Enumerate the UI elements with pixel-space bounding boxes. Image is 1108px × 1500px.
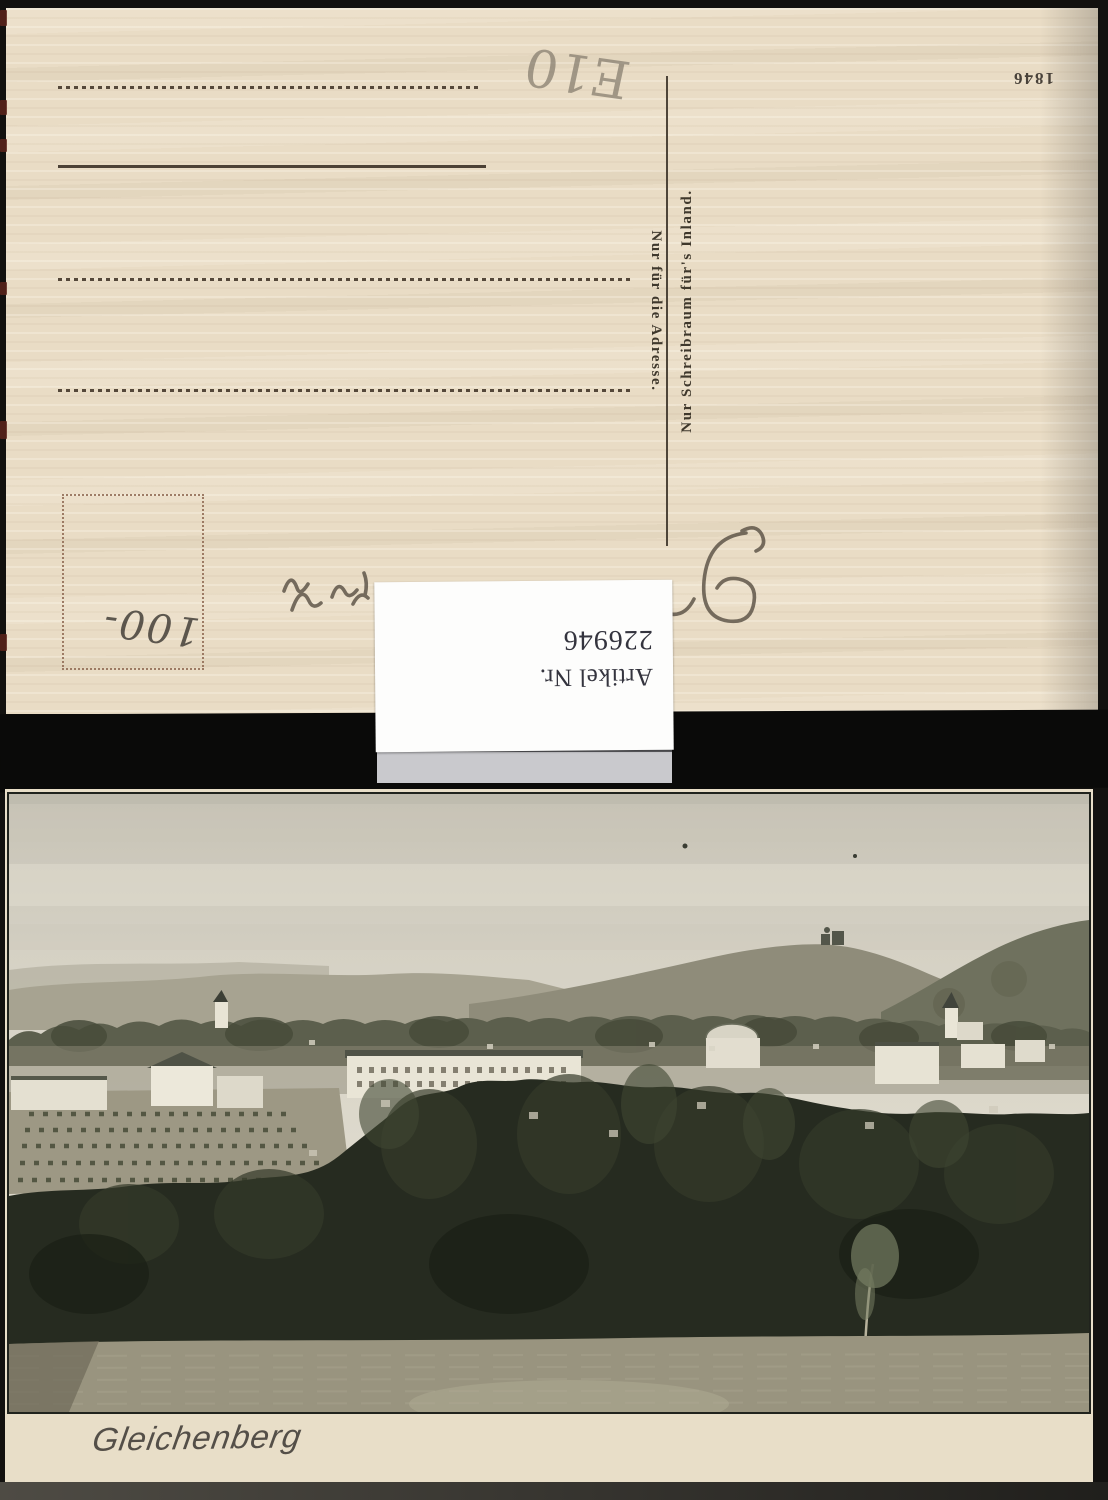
inventory-number: 1846 <box>990 62 1076 88</box>
postcard-front: Gleichenberg <box>5 789 1093 1482</box>
scan-edge-mark <box>0 139 7 152</box>
landscape-photo-svg <box>9 794 1089 1412</box>
label-number: 226946 <box>563 620 653 659</box>
scan-edge-mark <box>0 10 7 26</box>
article-number-label: Artikel Nr. 226946 <box>374 580 673 753</box>
scan-bottom-shadow <box>0 1482 1108 1500</box>
address-line <box>58 389 634 392</box>
label-text-block: Artikel Nr. 226946 <box>374 580 673 753</box>
label-shadow-strip <box>377 749 672 783</box>
scan-shading <box>1040 8 1098 714</box>
pencil-note-handwriting: E10 <box>525 20 630 123</box>
address-line <box>58 86 482 89</box>
scan-edge-mark <box>0 421 7 439</box>
divider-text-left: Nur für die Adresse. <box>642 211 664 411</box>
postcard-scan: Nur für die Adresse. Nur Schreibraum für… <box>0 0 1108 1500</box>
divider-line <box>666 76 668 546</box>
photo-meadow <box>9 1333 1089 1412</box>
photo-caption: Gleichenberg <box>90 1417 305 1459</box>
address-line <box>58 165 486 168</box>
label-prefix: Artikel Nr. <box>539 658 653 695</box>
scan-edge-mark <box>0 100 7 115</box>
address-line <box>58 278 630 281</box>
scan-edge-mark <box>0 282 7 295</box>
scan-edge-mark <box>0 634 7 651</box>
divider-text-right: Nur Schreibraum für's Inland. <box>679 166 701 456</box>
landscape-photo <box>7 792 1091 1414</box>
